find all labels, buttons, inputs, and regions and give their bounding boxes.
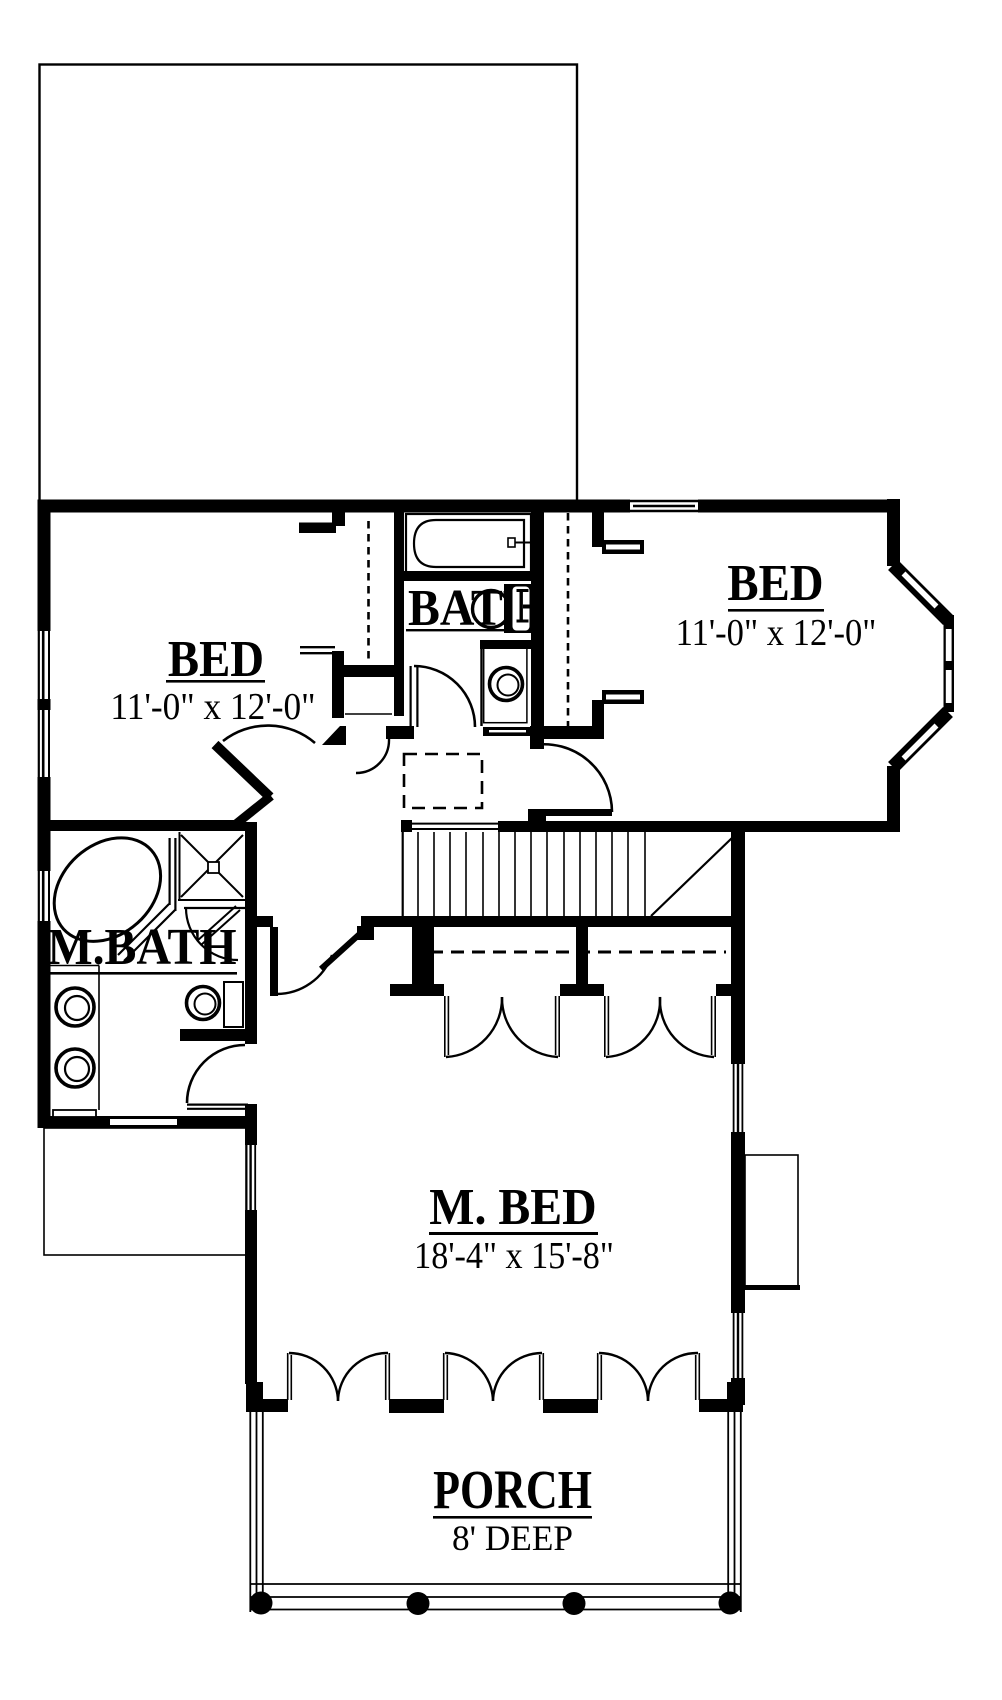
svg-text:11'-0" x 12'-0": 11'-0" x 12'-0" (676, 612, 877, 654)
svg-text:BED: BED (168, 630, 264, 688)
svg-text:18'-4" x 15'-8": 18'-4" x 15'-8" (414, 1234, 614, 1276)
svg-text:8' DEEP: 8' DEEP (452, 1518, 573, 1558)
svg-text:11'-0" x 12'-0": 11'-0" x 12'-0" (110, 685, 315, 727)
svg-text:M. BED: M. BED (429, 1177, 596, 1235)
svg-text:M.BATH: M.BATH (47, 917, 236, 975)
svg-text:BED: BED (727, 554, 823, 612)
svg-text:PORCH: PORCH (433, 1459, 592, 1520)
